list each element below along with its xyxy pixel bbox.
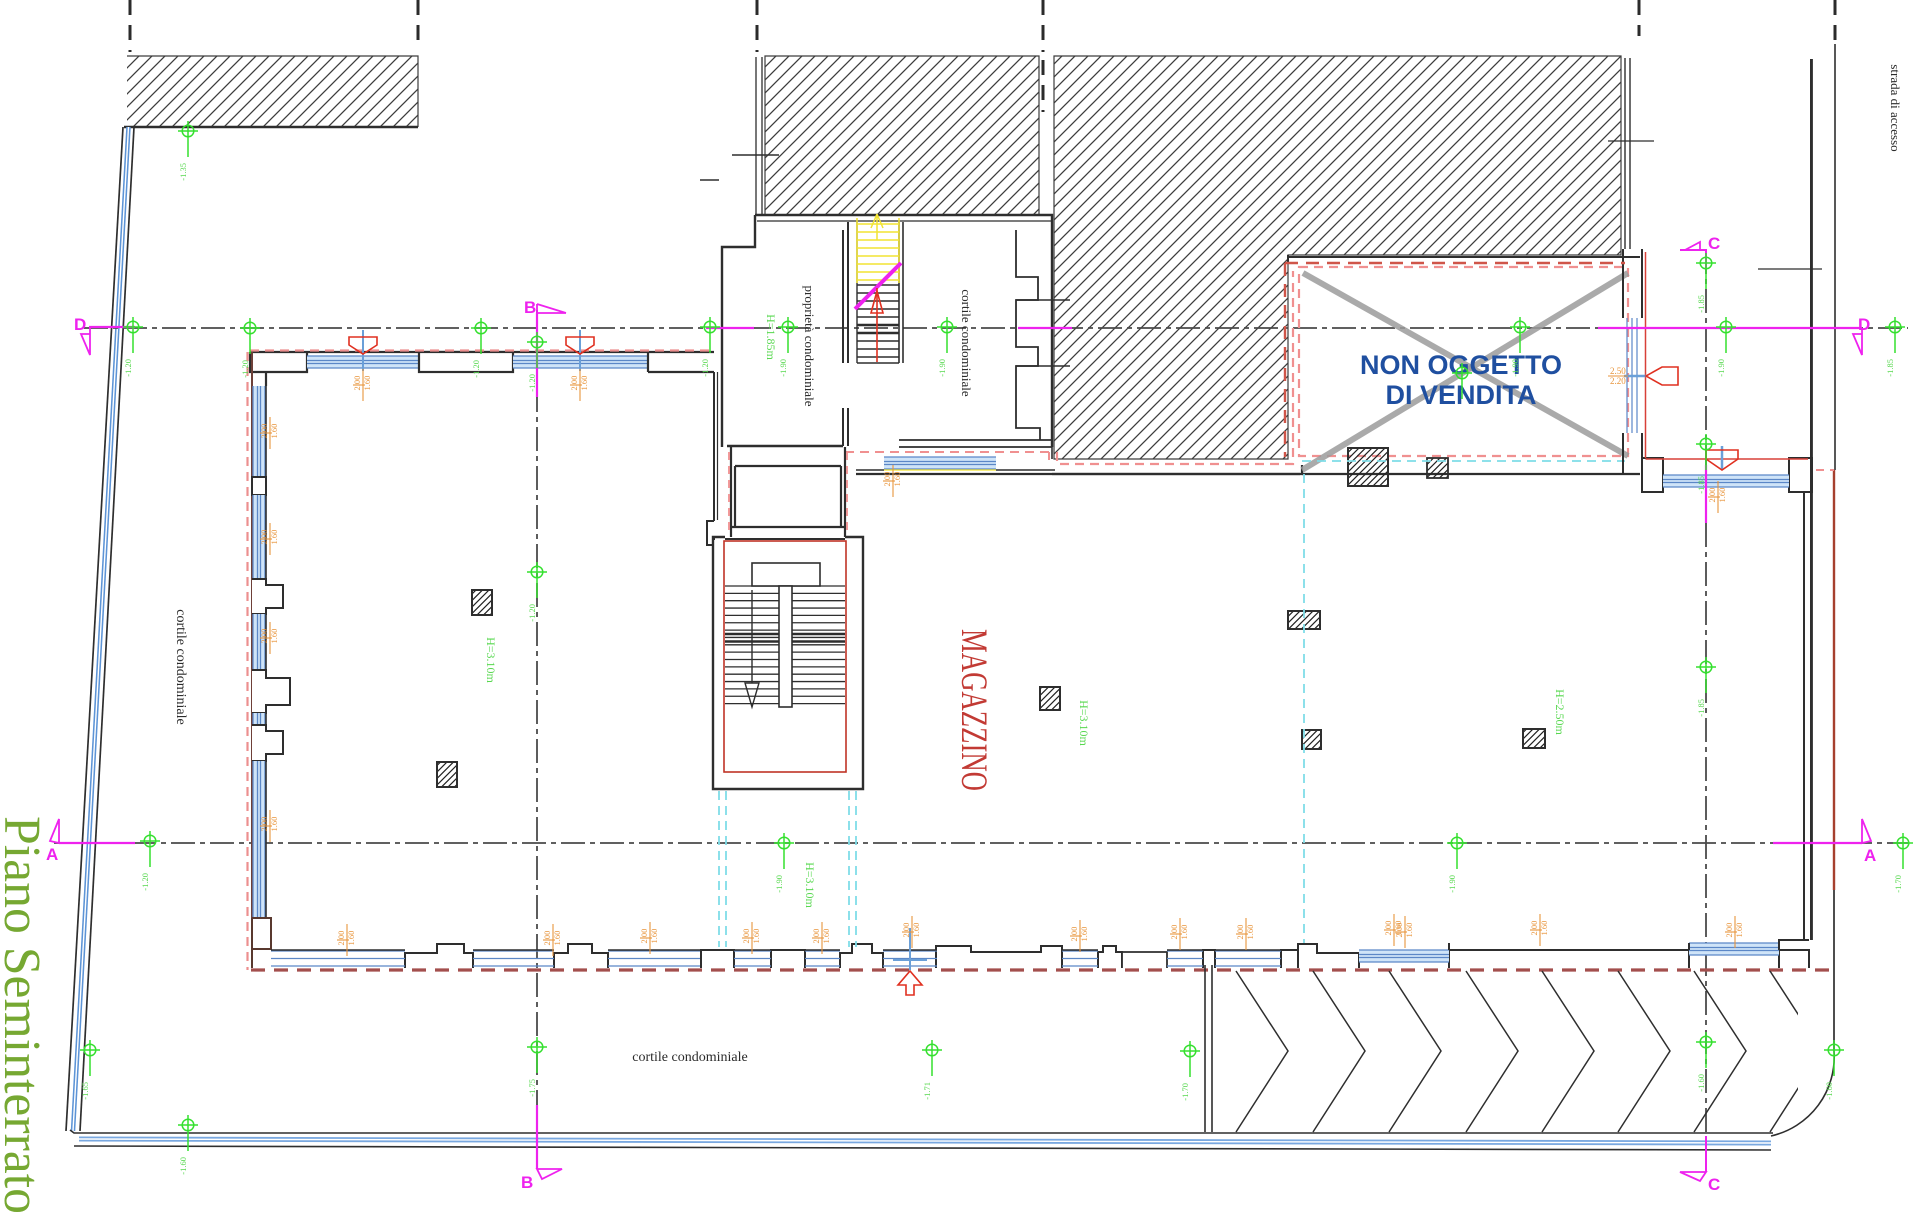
svg-text:D: D bbox=[1858, 315, 1870, 334]
svg-text:-1.70: -1.70 bbox=[1180, 1083, 1190, 1101]
svg-text:-1.20: -1.20 bbox=[140, 873, 150, 891]
svg-text:1.60: 1.60 bbox=[751, 929, 761, 944]
svg-text:1.60: 1.60 bbox=[579, 376, 589, 391]
svg-text:2.00: 2.00 bbox=[542, 931, 552, 946]
svg-text:1.60: 1.60 bbox=[1734, 923, 1744, 938]
svg-text:-1.85: -1.85 bbox=[1696, 295, 1706, 313]
svg-text:1.60: 1.60 bbox=[269, 629, 279, 644]
svg-text:1.60: 1.60 bbox=[269, 817, 279, 832]
svg-text:-1.90: -1.90 bbox=[778, 359, 788, 377]
svg-text:NON OGGETTO: NON OGGETTO bbox=[1360, 350, 1562, 380]
svg-text:1.60: 1.60 bbox=[1717, 488, 1727, 503]
svg-text:-1.70: -1.70 bbox=[1893, 875, 1903, 893]
svg-text:1.60: 1.60 bbox=[269, 424, 279, 439]
svg-text:-1.90: -1.90 bbox=[1447, 875, 1457, 893]
svg-text:-1.75: -1.75 bbox=[527, 1079, 537, 1097]
svg-text:H=1.85m: H=1.85m bbox=[764, 314, 778, 360]
svg-text:-1.20: -1.20 bbox=[700, 359, 710, 377]
svg-text:DI VENDITA: DI VENDITA bbox=[1385, 380, 1536, 410]
svg-text:1.60: 1.60 bbox=[911, 923, 921, 938]
svg-text:1.60: 1.60 bbox=[552, 931, 562, 946]
svg-text:-1.90: -1.90 bbox=[1716, 359, 1726, 377]
svg-text:-1.90: -1.90 bbox=[774, 875, 784, 893]
svg-text:1.60: 1.60 bbox=[1539, 921, 1549, 936]
svg-text:Piano Seminterrato: Piano Seminterrato bbox=[0, 816, 50, 1214]
svg-text:1.60: 1.60 bbox=[892, 472, 902, 487]
svg-text:2.00: 2.00 bbox=[1529, 921, 1539, 936]
svg-text:A: A bbox=[1864, 846, 1876, 865]
svg-text:-1.60: -1.60 bbox=[1824, 1082, 1834, 1100]
svg-text:2.00: 2.00 bbox=[259, 629, 269, 644]
svg-text:2.00: 2.00 bbox=[569, 376, 579, 391]
svg-text:-1.20: -1.20 bbox=[471, 360, 481, 378]
svg-text:-1.60: -1.60 bbox=[1696, 1074, 1706, 1092]
svg-text:2.00: 2.00 bbox=[259, 817, 269, 832]
svg-text:2.00: 2.00 bbox=[1707, 488, 1717, 503]
svg-text:MAGAZZINO: MAGAZZINO bbox=[953, 629, 994, 791]
svg-text:2.00: 2.00 bbox=[352, 376, 362, 391]
svg-text:H=3.10m: H=3.10m bbox=[803, 862, 817, 908]
svg-text:2.00: 2.00 bbox=[901, 923, 911, 938]
svg-text:-1.85: -1.85 bbox=[1885, 359, 1895, 377]
svg-text:2.00: 2.00 bbox=[811, 929, 821, 944]
svg-text:1.60: 1.60 bbox=[1245, 925, 1255, 940]
svg-text:cortile condominiale: cortile condominiale bbox=[173, 609, 188, 724]
svg-text:2.00: 2.00 bbox=[1383, 921, 1393, 936]
svg-text:-1.20: -1.20 bbox=[527, 374, 537, 392]
svg-text:2.20: 2.20 bbox=[1610, 376, 1626, 386]
svg-text:-1.85: -1.85 bbox=[1696, 476, 1706, 494]
svg-text:H=2.50m: H=2.50m bbox=[1553, 689, 1567, 735]
svg-text:H=3.10m: H=3.10m bbox=[484, 637, 498, 683]
svg-text:cortile condominiale: cortile condominiale bbox=[959, 289, 974, 396]
svg-text:1.60: 1.60 bbox=[1404, 923, 1414, 938]
svg-text:2.00: 2.00 bbox=[639, 929, 649, 944]
svg-text:1.60: 1.60 bbox=[649, 929, 659, 944]
svg-text:1.60: 1.60 bbox=[1179, 925, 1189, 940]
svg-text:H=3.10m: H=3.10m bbox=[1077, 700, 1091, 746]
svg-text:-1.60: -1.60 bbox=[178, 1157, 188, 1175]
svg-text:C: C bbox=[1708, 1175, 1720, 1194]
svg-text:-1.65: -1.65 bbox=[80, 1082, 90, 1100]
svg-text:-1.20: -1.20 bbox=[240, 360, 250, 378]
svg-text:2.00: 2.00 bbox=[259, 424, 269, 439]
svg-text:proprietà condominiale: proprietà condominiale bbox=[802, 286, 817, 407]
svg-text:B: B bbox=[524, 298, 536, 317]
svg-text:1.60: 1.60 bbox=[346, 931, 356, 946]
svg-text:2.00: 2.00 bbox=[259, 530, 269, 545]
svg-text:-1.71: -1.71 bbox=[922, 1082, 932, 1100]
svg-text:-1.20: -1.20 bbox=[123, 359, 133, 377]
svg-text:-1.90: -1.90 bbox=[1510, 359, 1520, 377]
svg-text:2.00: 2.00 bbox=[336, 931, 346, 946]
svg-text:B: B bbox=[521, 1173, 533, 1192]
svg-text:strada di accesso: strada di accesso bbox=[1888, 64, 1903, 151]
svg-text:1.60: 1.60 bbox=[1079, 927, 1089, 942]
svg-text:C: C bbox=[1708, 234, 1720, 253]
svg-text:2.00: 2.00 bbox=[882, 472, 892, 487]
svg-text:2.50: 2.50 bbox=[1610, 366, 1626, 376]
svg-text:-1.90: -1.90 bbox=[937, 359, 947, 377]
svg-text:2.00: 2.00 bbox=[1235, 925, 1245, 940]
svg-text:2.00: 2.00 bbox=[1724, 923, 1734, 938]
svg-text:2.00: 2.00 bbox=[741, 929, 751, 944]
svg-text:-1.85: -1.85 bbox=[1696, 699, 1706, 717]
svg-text:cortile condominiale: cortile condominiale bbox=[632, 1050, 747, 1065]
svg-text:2.00: 2.00 bbox=[1069, 927, 1079, 942]
svg-text:-1.20: -1.20 bbox=[527, 604, 537, 622]
svg-text:2.00: 2.00 bbox=[1169, 925, 1179, 940]
svg-text:D: D bbox=[74, 315, 86, 334]
svg-text:1.60: 1.60 bbox=[362, 376, 372, 391]
svg-text:1.60: 1.60 bbox=[821, 929, 831, 944]
svg-text:1.60: 1.60 bbox=[269, 530, 279, 545]
svg-text:2.00: 2.00 bbox=[1394, 923, 1404, 938]
svg-text:-1.35: -1.35 bbox=[178, 163, 188, 181]
